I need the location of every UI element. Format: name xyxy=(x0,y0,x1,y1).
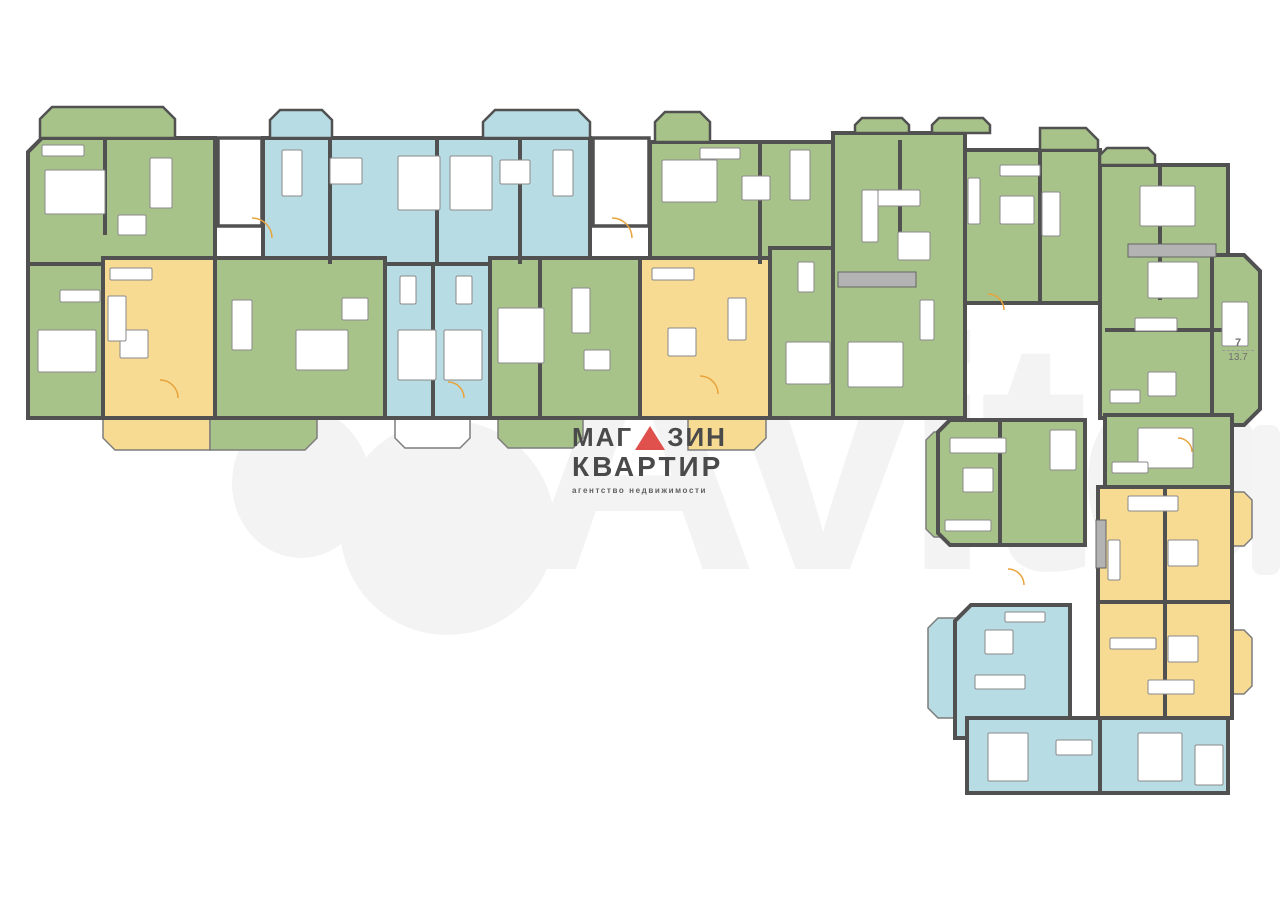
logo-line1: МАГ ЗИН xyxy=(572,424,722,450)
balcony xyxy=(1232,492,1252,546)
balcony xyxy=(210,418,317,450)
bay-window xyxy=(1100,148,1155,165)
balcony xyxy=(498,418,583,448)
entrance-hall xyxy=(593,138,649,226)
furniture xyxy=(798,262,814,292)
furniture xyxy=(1110,390,1140,403)
unit-a9-yellow xyxy=(640,258,770,418)
furniture xyxy=(1128,496,1178,511)
furniture xyxy=(110,268,152,280)
wardrobe-hatch xyxy=(1128,244,1216,257)
furniture xyxy=(963,468,993,492)
room-area: 13.7 xyxy=(1222,351,1254,363)
bay-window xyxy=(40,107,175,138)
furniture xyxy=(848,342,903,387)
furniture xyxy=(1168,636,1198,662)
balcony xyxy=(103,418,210,450)
furniture xyxy=(975,675,1025,689)
furniture xyxy=(950,438,1006,453)
furniture xyxy=(1112,462,1148,473)
furniture xyxy=(108,296,126,341)
furniture xyxy=(118,215,146,235)
furniture xyxy=(450,156,492,210)
furniture xyxy=(45,170,105,214)
furniture xyxy=(988,733,1028,781)
furniture xyxy=(150,158,172,208)
furniture xyxy=(668,328,696,356)
furniture xyxy=(456,276,472,304)
furniture xyxy=(398,330,436,380)
balcony xyxy=(395,418,470,448)
furniture xyxy=(742,176,770,200)
wardrobe-hatch xyxy=(838,272,916,287)
furniture xyxy=(342,298,368,320)
furniture xyxy=(42,145,84,156)
logo-text-kvartir: КВАРТИР xyxy=(572,451,722,483)
furniture xyxy=(1148,372,1176,396)
logo-triangle-icon xyxy=(635,426,665,450)
balcony xyxy=(928,618,956,718)
furniture xyxy=(786,342,830,384)
furniture xyxy=(1050,430,1076,470)
furniture xyxy=(968,178,980,224)
door-swing xyxy=(1008,569,1024,585)
furniture xyxy=(398,156,440,210)
furniture xyxy=(553,150,573,196)
furniture xyxy=(584,350,610,370)
bay-window xyxy=(932,118,990,133)
furniture xyxy=(282,150,302,196)
furniture xyxy=(1168,540,1198,566)
furniture xyxy=(1135,318,1177,331)
furniture xyxy=(1005,612,1045,622)
furniture xyxy=(920,300,934,340)
furniture xyxy=(1148,262,1198,298)
bay-window xyxy=(270,110,332,138)
room-label: 7 13.7 xyxy=(1222,337,1254,363)
furniture xyxy=(400,276,416,304)
balcony xyxy=(1232,630,1252,694)
furniture xyxy=(652,268,694,280)
furniture xyxy=(1140,186,1195,226)
bay-window xyxy=(655,112,710,142)
furniture xyxy=(330,158,362,184)
furniture xyxy=(1000,196,1034,224)
furniture xyxy=(1056,740,1092,755)
furniture xyxy=(790,150,810,200)
furniture xyxy=(862,190,878,242)
furniture xyxy=(498,308,544,363)
furniture xyxy=(898,232,930,260)
wardrobe-hatch xyxy=(1096,520,1106,568)
bay-window xyxy=(1040,128,1098,150)
furniture xyxy=(728,298,746,340)
logo-text-mag: МАГ xyxy=(572,424,633,450)
entrance-hall xyxy=(218,138,262,226)
furniture xyxy=(1195,745,1223,785)
furniture xyxy=(1110,638,1156,649)
furniture xyxy=(296,330,348,370)
furniture xyxy=(700,148,740,159)
furniture xyxy=(232,300,252,350)
room-number: 7 xyxy=(1222,337,1254,351)
furniture xyxy=(985,630,1013,654)
furniture xyxy=(1000,165,1040,176)
furniture xyxy=(38,330,96,372)
logo-tagline: агентство недвижимости xyxy=(572,486,722,495)
furniture xyxy=(945,520,991,531)
furniture xyxy=(572,288,590,333)
bay-window xyxy=(855,118,909,133)
furniture xyxy=(1148,680,1194,694)
furniture xyxy=(1138,733,1182,781)
floorplan-image: Avito МАГ ЗИН КВАРТИР агентство недвижим… xyxy=(0,0,1280,904)
bay-window xyxy=(483,110,590,138)
logo-text-zin: ЗИН xyxy=(667,424,727,450)
furniture xyxy=(662,160,717,202)
agency-logo: МАГ ЗИН КВАРТИР агентство недвижимости xyxy=(572,424,722,495)
furniture xyxy=(1042,192,1060,236)
furniture xyxy=(444,330,482,380)
furniture xyxy=(1108,540,1120,580)
furniture xyxy=(500,160,530,184)
furniture xyxy=(60,290,100,302)
